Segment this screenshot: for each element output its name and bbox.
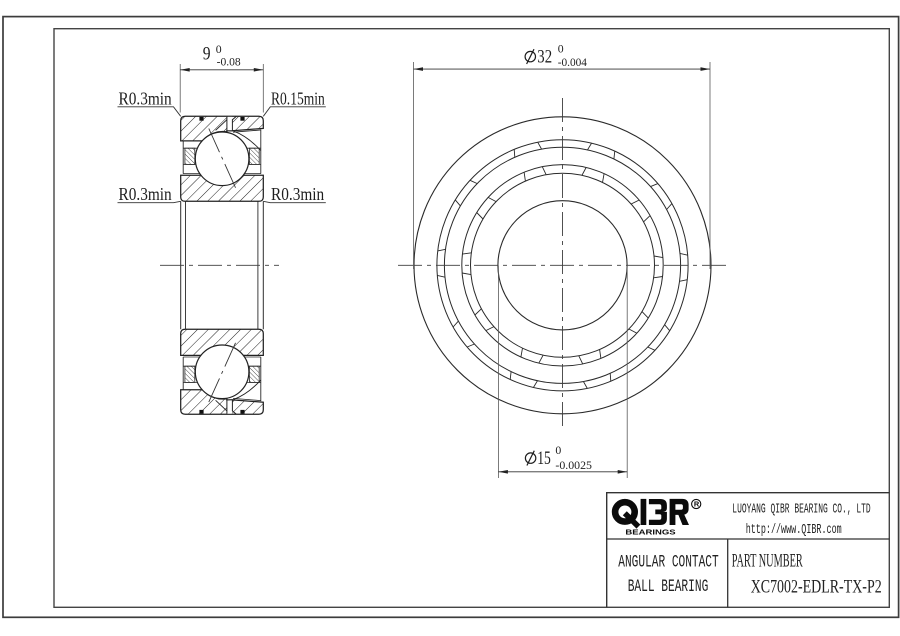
svg-text:http://www.QIBR.com: http://www.QIBR.com <box>746 522 842 538</box>
svg-text:-0.004: -0.004 <box>558 55 587 69</box>
svg-text:9: 9 <box>203 45 211 65</box>
svg-text:32: 32 <box>537 46 552 67</box>
svg-text:ANGULAR CONTACT: ANGULAR CONTACT <box>618 552 718 572</box>
svg-text:R0.3min: R0.3min <box>119 88 172 108</box>
svg-text:R0.3min: R0.3min <box>119 184 172 204</box>
svg-text:BALL BEARING: BALL BEARING <box>628 577 709 597</box>
svg-text:R0.15min: R0.15min <box>271 88 325 108</box>
svg-text:XC7002-EDLR-TX-P2: XC7002-EDLR-TX-P2 <box>751 577 882 598</box>
svg-text:0: 0 <box>555 443 561 457</box>
svg-text:15: 15 <box>537 448 551 469</box>
svg-text:R: R <box>694 500 700 509</box>
svg-text:PART NUMBER: PART NUMBER <box>732 551 803 571</box>
svg-text:0: 0 <box>558 42 564 56</box>
svg-text:-0.08: -0.08 <box>217 54 241 68</box>
svg-text:LUOYANG QIBR BEARING CO., LTD: LUOYANG QIBR BEARING CO., LTD <box>732 502 870 517</box>
svg-text:-0.0025: -0.0025 <box>555 458 592 472</box>
svg-text:R0.3min: R0.3min <box>271 184 324 204</box>
svg-text:BEARINGS: BEARINGS <box>625 527 675 536</box>
